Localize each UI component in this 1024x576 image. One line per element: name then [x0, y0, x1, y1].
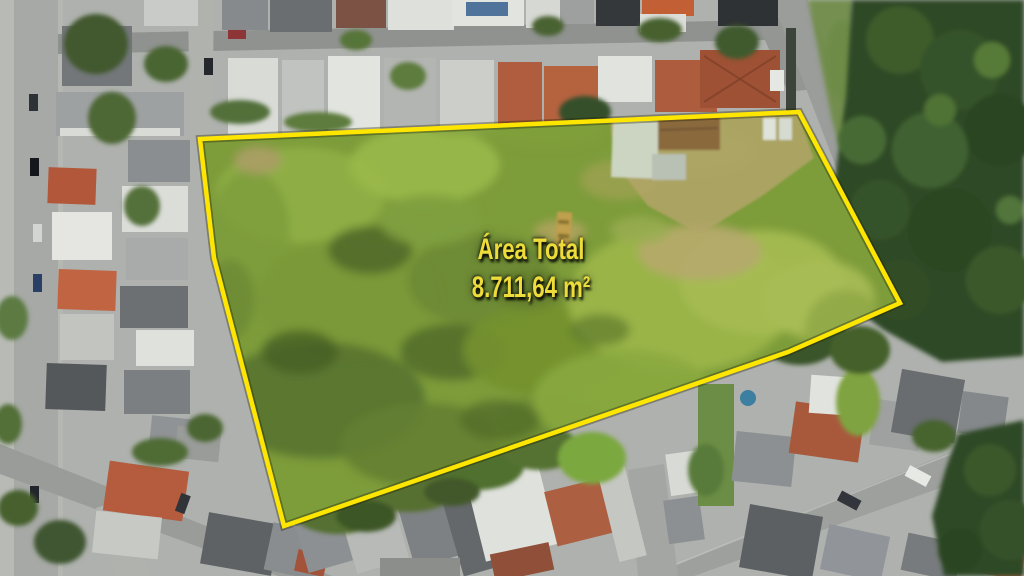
aerial-photo-land-plot: Área Total 8.711,64 m²	[0, 0, 1024, 576]
aerial-photo	[0, 0, 1024, 576]
